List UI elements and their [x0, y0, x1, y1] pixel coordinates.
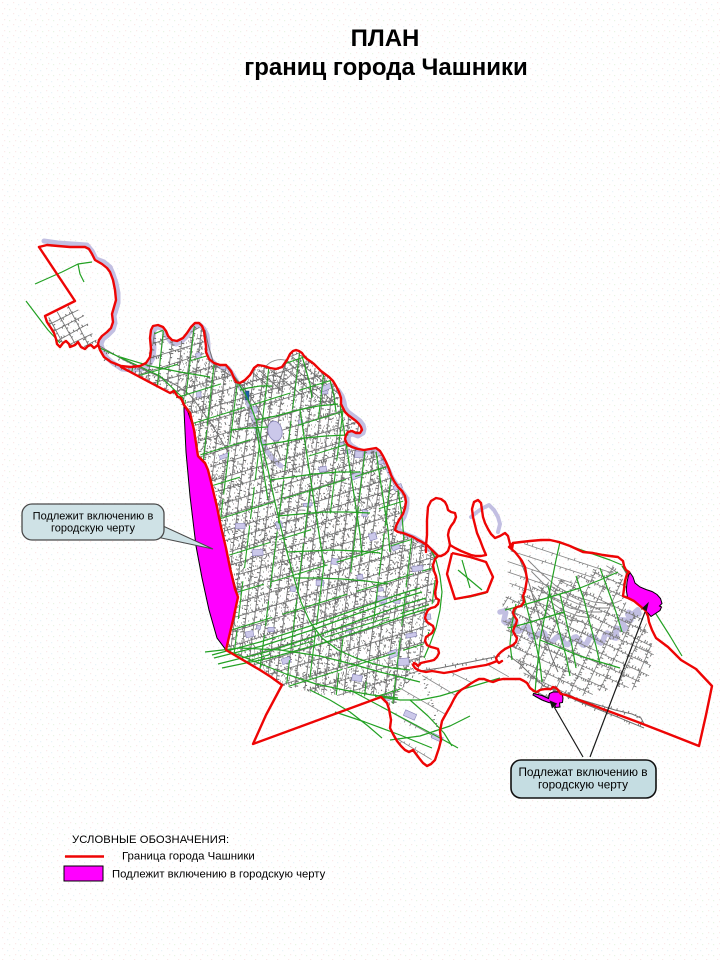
svg-text:границ города Чашники: границ города Чашники [244, 54, 528, 81]
svg-text:городскую черту: городскую черту [51, 523, 135, 535]
svg-text:Подлежит включению в городскую: Подлежит включению в городскую черту [112, 869, 326, 881]
svg-text:Граница города Чашники: Граница города Чашники [122, 851, 255, 863]
svg-text:ПЛАН: ПЛАН [351, 25, 420, 52]
svg-text:городскую черту: городскую черту [538, 778, 628, 792]
svg-text:УСЛОВНЫЕ ОБОЗНАЧЕНИЯ:: УСЛОВНЫЕ ОБОЗНАЧЕНИЯ: [72, 834, 229, 846]
svg-text:Подлежит включению в: Подлежит включению в [33, 511, 154, 523]
